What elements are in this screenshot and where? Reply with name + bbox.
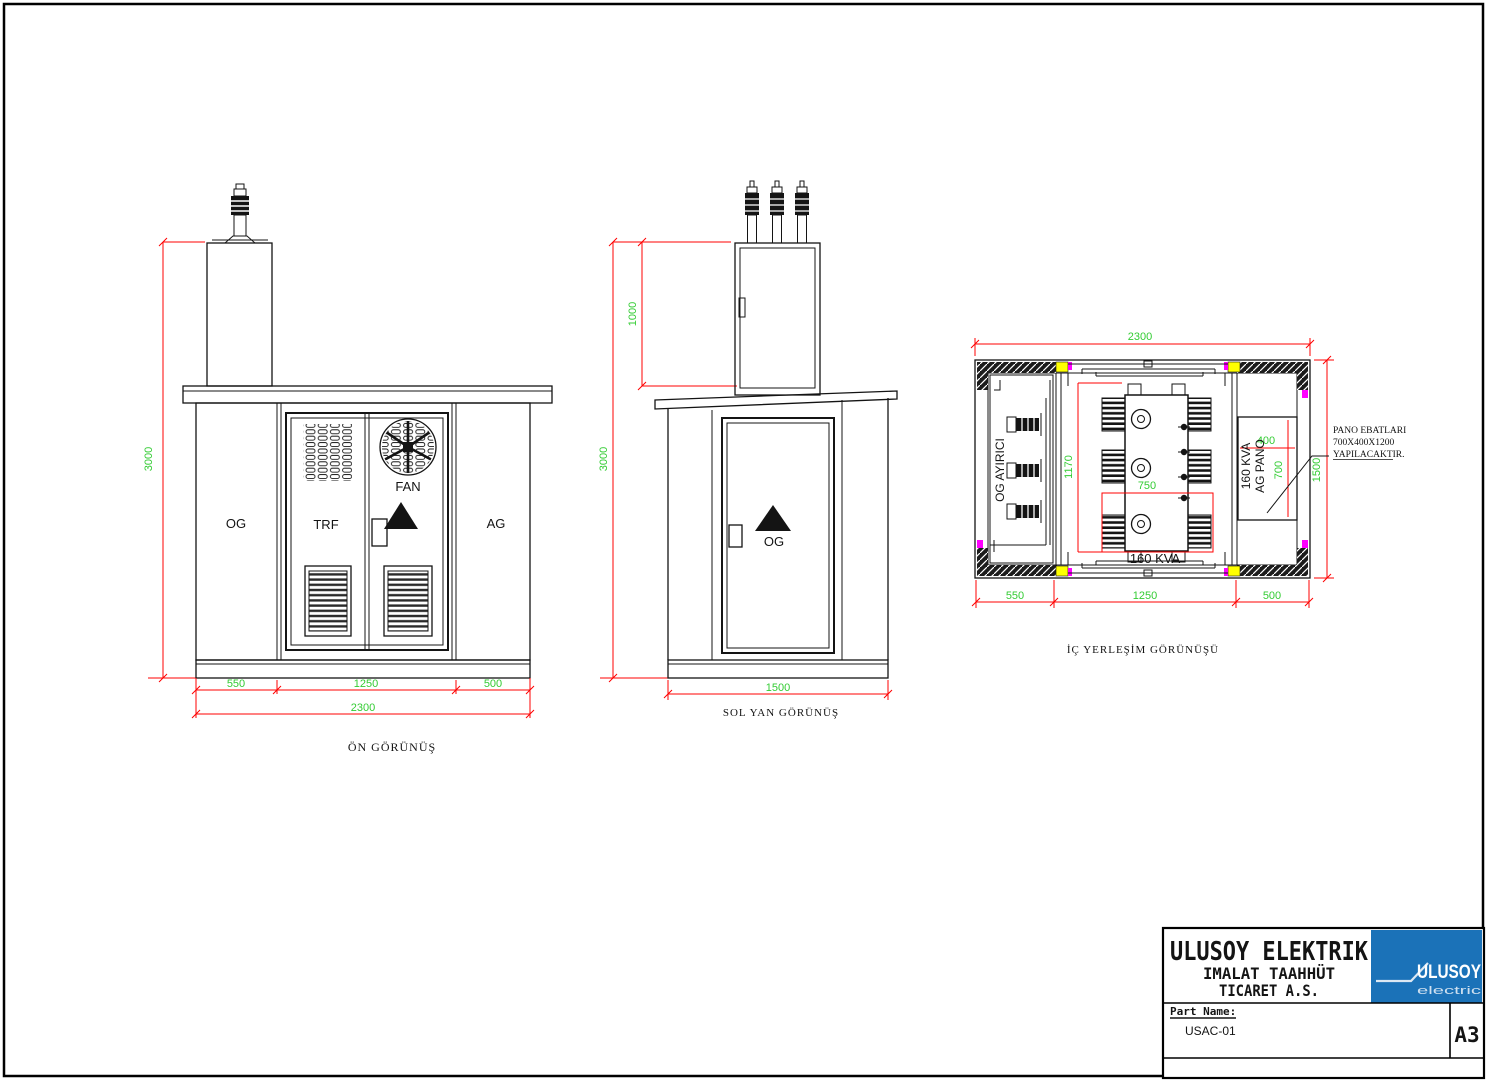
side-dim-1500: 1500 xyxy=(766,682,790,694)
panel-note-line1: PANO EBATLARI xyxy=(1333,426,1406,436)
front-dim-550: 550 xyxy=(227,678,245,690)
company-line3: TICARET A.S. xyxy=(1219,981,1319,1000)
front-view-caption: ÖN GÖRÜNÜŞ xyxy=(348,740,436,754)
corner-accent xyxy=(1224,568,1228,576)
company-name: ULUSOY ELEKTRIK xyxy=(1170,937,1368,967)
plan-dim-550: 550 xyxy=(1006,590,1024,602)
plan-dim-700: 700 xyxy=(1273,461,1285,479)
front-dim-2300: 2300 xyxy=(351,702,375,714)
front-dim-height: 3000 xyxy=(143,447,155,471)
panel-note-line2: 700X400X1200 xyxy=(1333,438,1394,448)
engineering-drawing: 3000 xyxy=(0,0,1487,1080)
plan-ag-panel-label-1: 160 KVA xyxy=(1239,443,1253,489)
plan-og-switch-label: OG AYIRICI xyxy=(993,438,1007,502)
jamb-accent xyxy=(1056,566,1068,576)
panel-note-line3: YAPILACAKTIR. xyxy=(1333,450,1405,460)
front-og-label: OG xyxy=(226,516,246,531)
corner-accent xyxy=(1068,568,1072,576)
corner-accent xyxy=(1302,540,1308,548)
front-dim-500: 500 xyxy=(484,678,502,690)
logo-subtext: electric xyxy=(1417,985,1482,997)
side-view-caption: SOL YAN GÖRÜNÜŞ xyxy=(723,707,839,719)
company-logo: ULUSOY electric xyxy=(1371,930,1482,1003)
front-dim-1250: 1250 xyxy=(354,678,378,690)
corner-accent xyxy=(977,540,983,548)
plan-dim-500: 500 xyxy=(1263,590,1281,602)
plan-dim-750: 750 xyxy=(1138,480,1156,492)
logo-text: ULUSOY xyxy=(1417,962,1481,983)
side-dim-height: 3000 xyxy=(598,447,610,471)
plan-dim-1250: 1250 xyxy=(1133,590,1157,602)
corner-accent xyxy=(1068,362,1072,370)
part-name-value: USAC-01 xyxy=(1185,1024,1236,1038)
jamb-accent xyxy=(1228,566,1240,576)
sheet-border xyxy=(4,4,1483,1076)
drawing-sheet: 3000 xyxy=(0,0,1487,1080)
jamb-accent xyxy=(1228,362,1240,372)
fan-label: FAN xyxy=(395,479,420,494)
plan-view-caption: İÇ YERLEŞİM GÖRÜNÜŞÜ xyxy=(1067,644,1219,656)
title-block: ULUSOY ELEKTRIK IMALAT TAAHHÜT TICARET A… xyxy=(1163,928,1484,1078)
side-dim-1000: 1000 xyxy=(627,302,639,326)
front-trf-label: TRF xyxy=(313,517,338,532)
plan-dim-1500: 1500 xyxy=(1311,458,1323,482)
part-name-label: Part Name: xyxy=(1170,1005,1236,1018)
plan-ag-panel-label-2: AG PANO xyxy=(1253,439,1267,493)
front-ag-label: AG xyxy=(487,516,506,531)
plan-dim-1170: 1170 xyxy=(1063,455,1075,479)
trf-vent-grille xyxy=(303,424,352,481)
side-og-label: OG xyxy=(764,534,784,549)
plan-transformer-label: 160 KVA xyxy=(1130,551,1181,566)
corner-accent xyxy=(1302,390,1308,398)
sheet-size: A3 xyxy=(1454,1023,1479,1047)
corner-accent xyxy=(1224,362,1228,370)
fan-icon xyxy=(380,419,436,475)
plan-dim-2300: 2300 xyxy=(1128,331,1152,343)
jamb-accent xyxy=(1056,362,1068,372)
